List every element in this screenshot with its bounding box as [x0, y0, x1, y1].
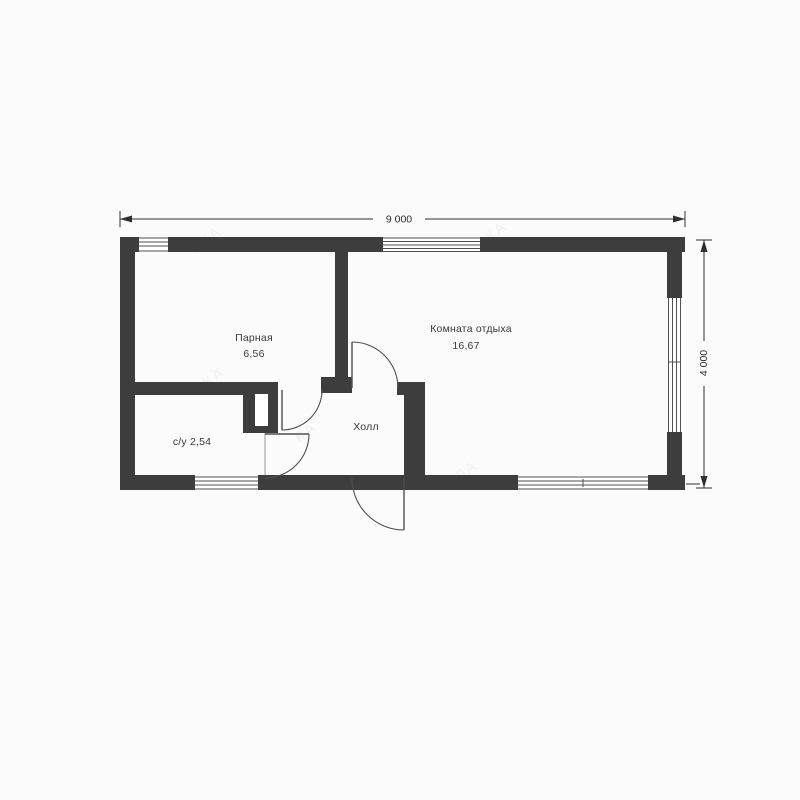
window-right	[667, 298, 682, 432]
dimension-height: 4 000	[686, 240, 712, 488]
wall-parnaya-rest-footing	[321, 377, 352, 393]
wall-left	[120, 237, 135, 490]
watermark-text: КА	[292, 419, 320, 446]
window-top-left	[139, 237, 168, 252]
room-label-hall: Холл	[353, 421, 379, 433]
dimension-height-label: 4 000	[698, 350, 710, 376]
floor-plan-page: СКА СКА КА ЛА КА	[0, 0, 800, 800]
doors	[265, 342, 404, 530]
room-label-parnaya: Парная	[235, 332, 273, 344]
room-area-rest: 16,67	[452, 340, 479, 352]
door-rest-room	[352, 342, 398, 388]
room-area-parnaya: 6,56	[243, 348, 264, 360]
room-label-bathroom: с/у 2,54	[173, 436, 211, 448]
dimension-arrow-left	[120, 216, 132, 223]
stove-niche	[255, 394, 268, 426]
floor-plan-canvas: СКА СКА КА ЛА КА	[0, 0, 800, 800]
dimension-arrow-right	[673, 216, 685, 223]
window-bottom-left	[195, 475, 258, 490]
dimension-width: 9 000	[120, 211, 685, 227]
room-label-rest: Комната отдыха	[430, 323, 512, 335]
door-swing-arc	[352, 342, 398, 388]
dimension-arrow-bottom	[701, 476, 708, 488]
wall-parnaya-rest	[335, 252, 348, 378]
dimension-arrow-top	[701, 240, 708, 252]
dimension-width-label: 9 000	[386, 214, 412, 226]
window-bottom-right	[518, 475, 648, 490]
wall-hall-rest	[404, 382, 425, 475]
outer-walls	[120, 237, 685, 490]
window-top-middle	[383, 237, 480, 252]
